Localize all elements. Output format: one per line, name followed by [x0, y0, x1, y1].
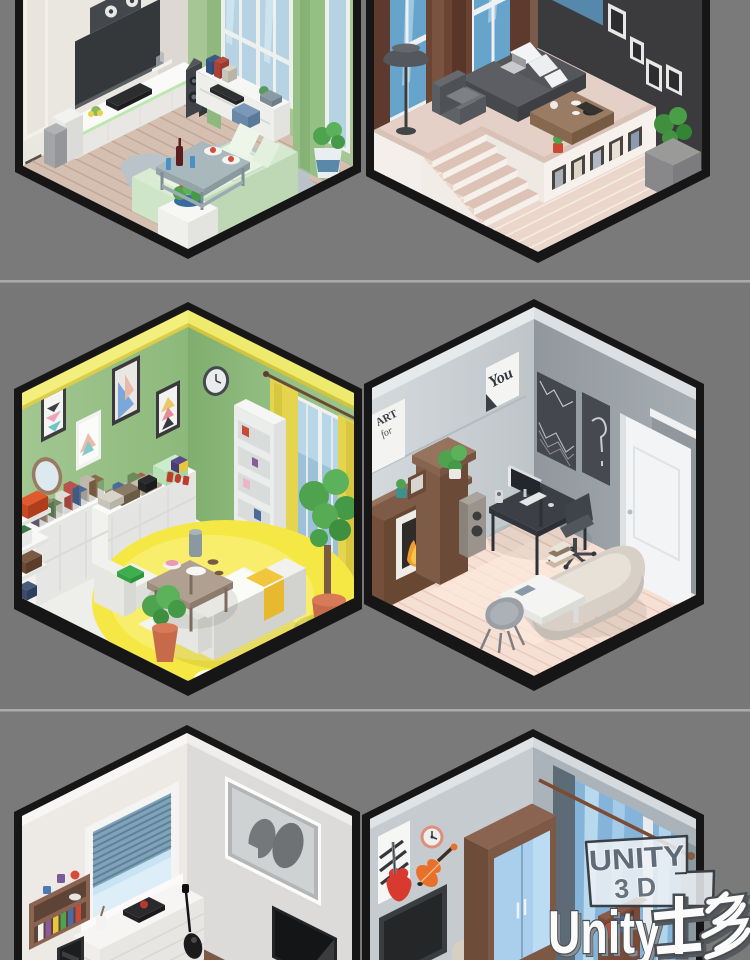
svg-text:Unity: Unity: [548, 899, 660, 960]
